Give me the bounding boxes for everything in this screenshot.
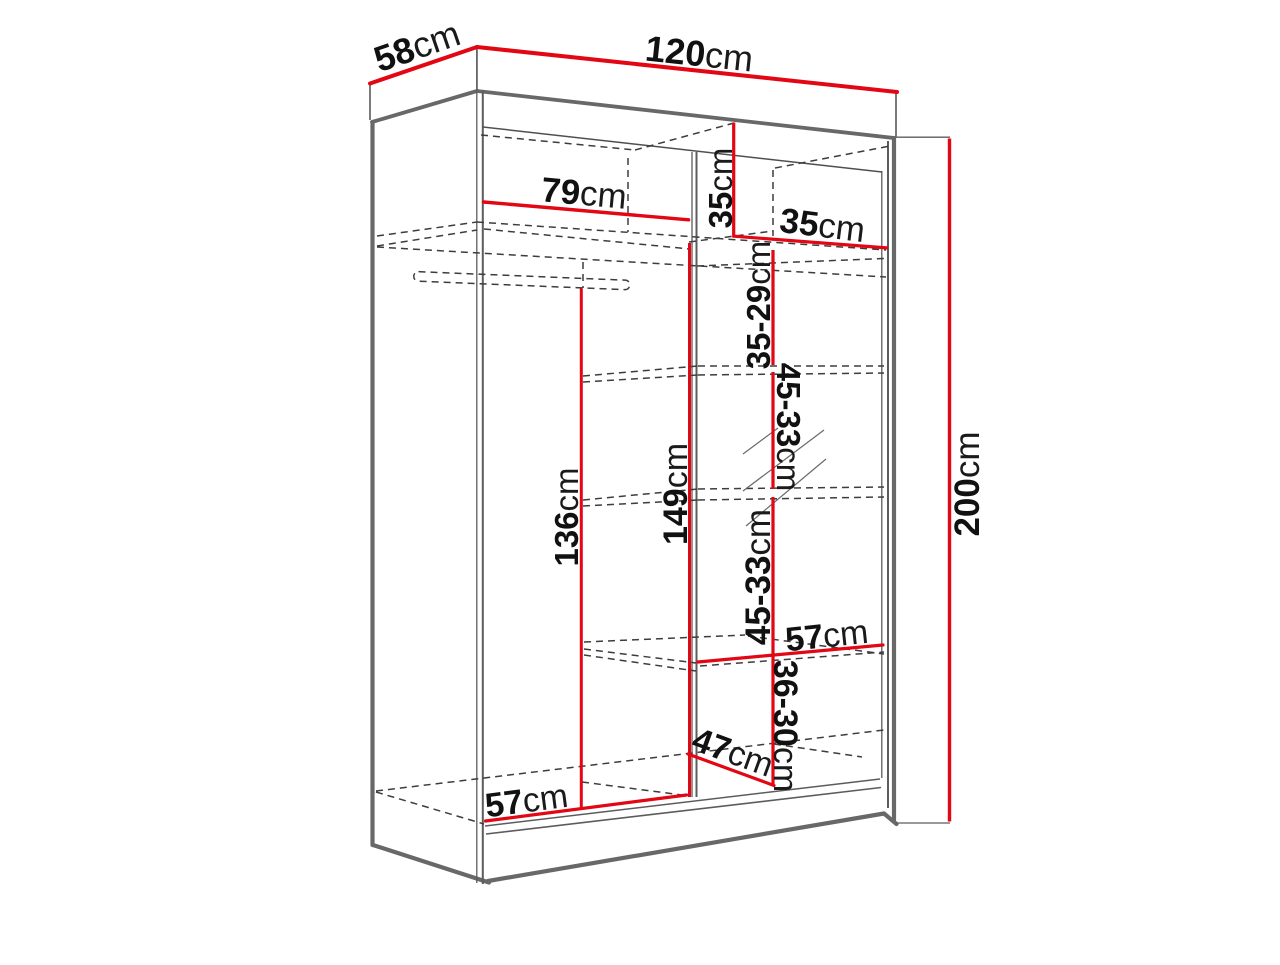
svg-text:35cm: 35cm <box>702 148 739 229</box>
svg-text:35-29cm: 35-29cm <box>740 241 777 369</box>
svg-text:45-33cm: 45-33cm <box>770 363 807 491</box>
svg-text:136cm: 136cm <box>548 467 585 566</box>
svg-text:200cm: 200cm <box>948 431 987 536</box>
svg-text:36-30cm: 36-30cm <box>766 660 804 792</box>
svg-text:149cm: 149cm <box>657 443 695 545</box>
svg-text:79cm: 79cm <box>540 170 629 216</box>
svg-text:45-33cm: 45-33cm <box>739 509 778 645</box>
